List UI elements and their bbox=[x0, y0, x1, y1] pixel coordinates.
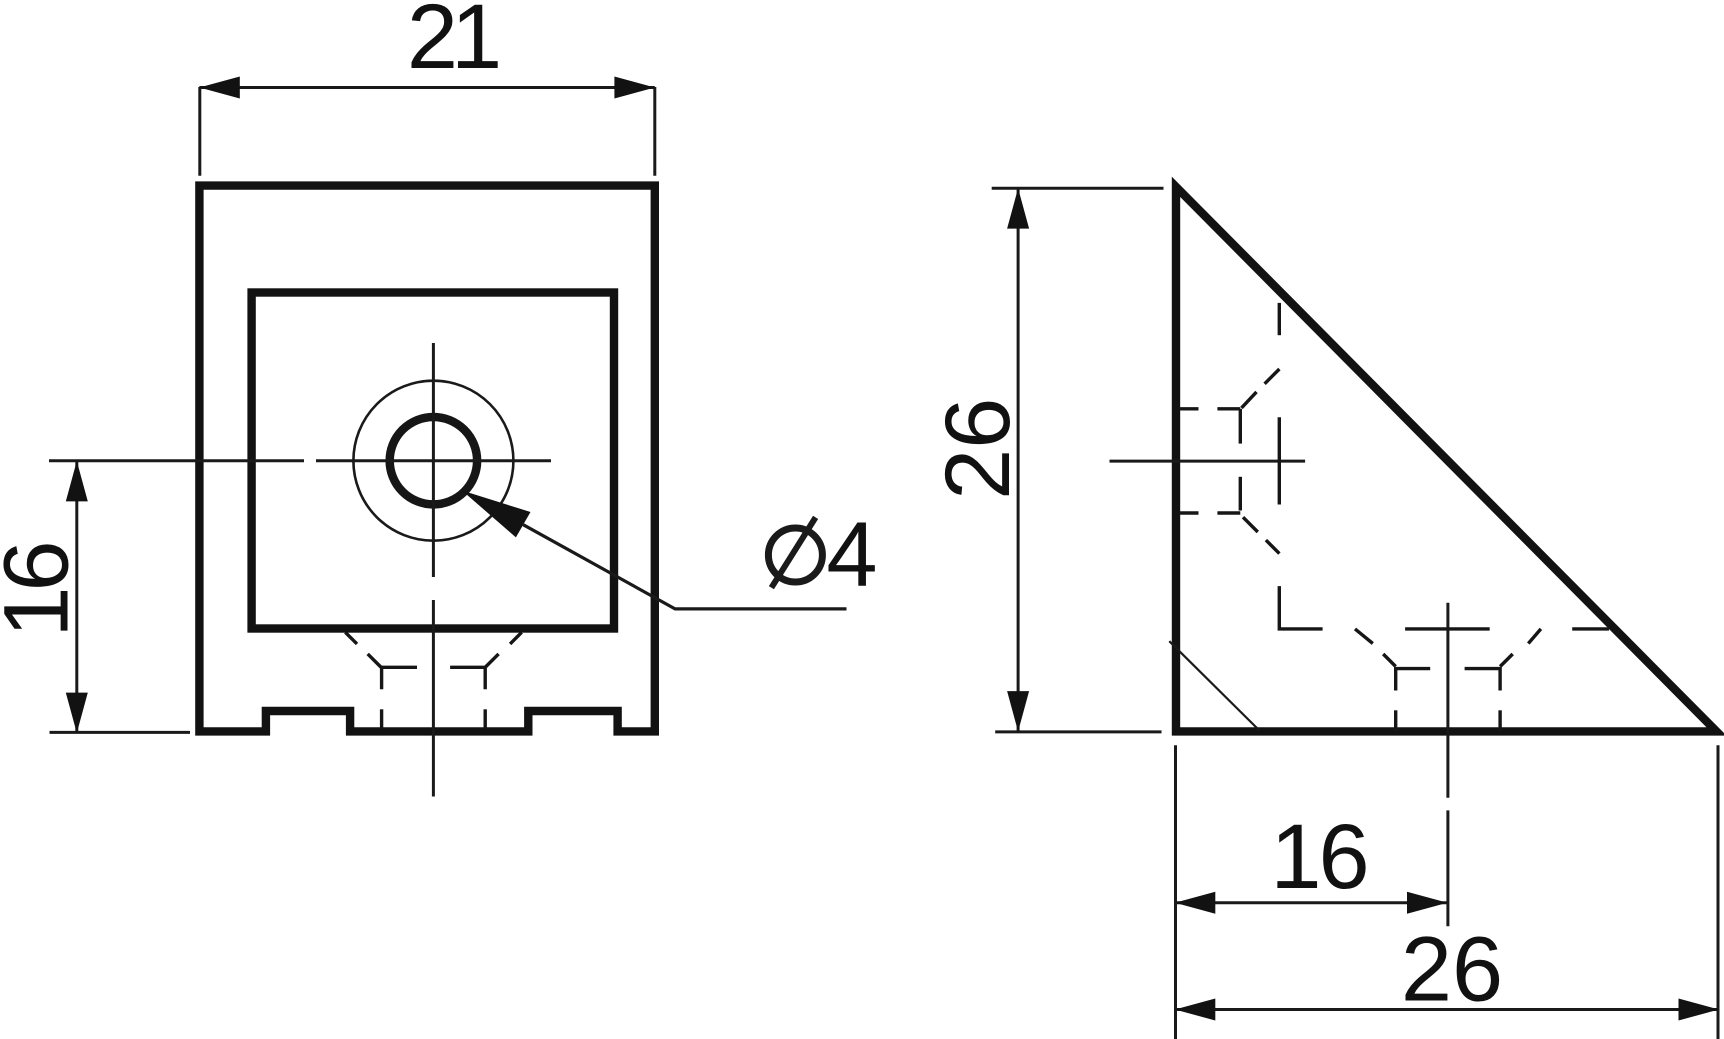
svg-text:21: 21 bbox=[407, 0, 498, 88]
svg-text:26: 26 bbox=[927, 398, 1029, 500]
svg-text:26: 26 bbox=[1401, 918, 1503, 1020]
svg-text:4: 4 bbox=[826, 504, 877, 606]
svg-text:16: 16 bbox=[1270, 806, 1366, 908]
svg-text:16: 16 bbox=[0, 544, 88, 638]
